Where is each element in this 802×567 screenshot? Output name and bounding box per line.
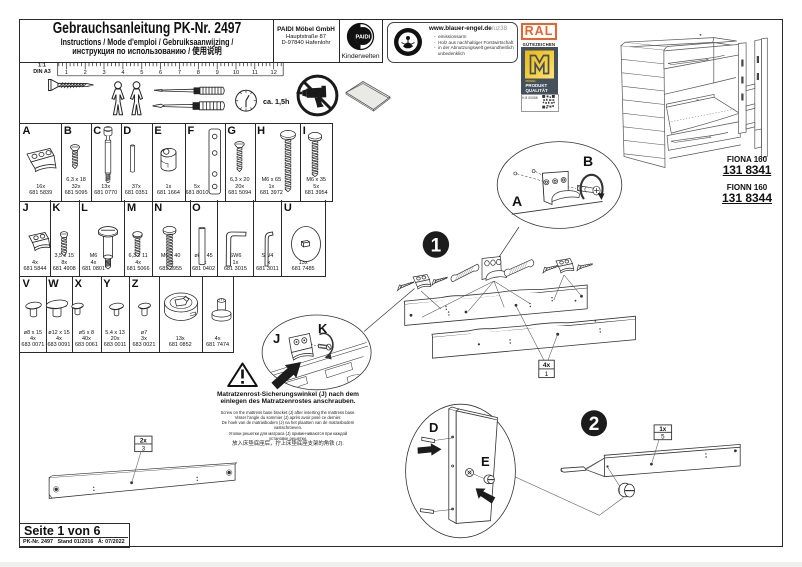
svg-text:2: 2	[589, 414, 600, 435]
svg-text:E: E	[481, 454, 490, 469]
svg-text:D: D	[429, 420, 438, 435]
svg-text:5: 5	[661, 434, 665, 441]
svg-text:2x: 2x	[140, 437, 147, 444]
svg-text:3: 3	[142, 445, 146, 452]
svg-text:1x: 1x	[659, 426, 666, 433]
